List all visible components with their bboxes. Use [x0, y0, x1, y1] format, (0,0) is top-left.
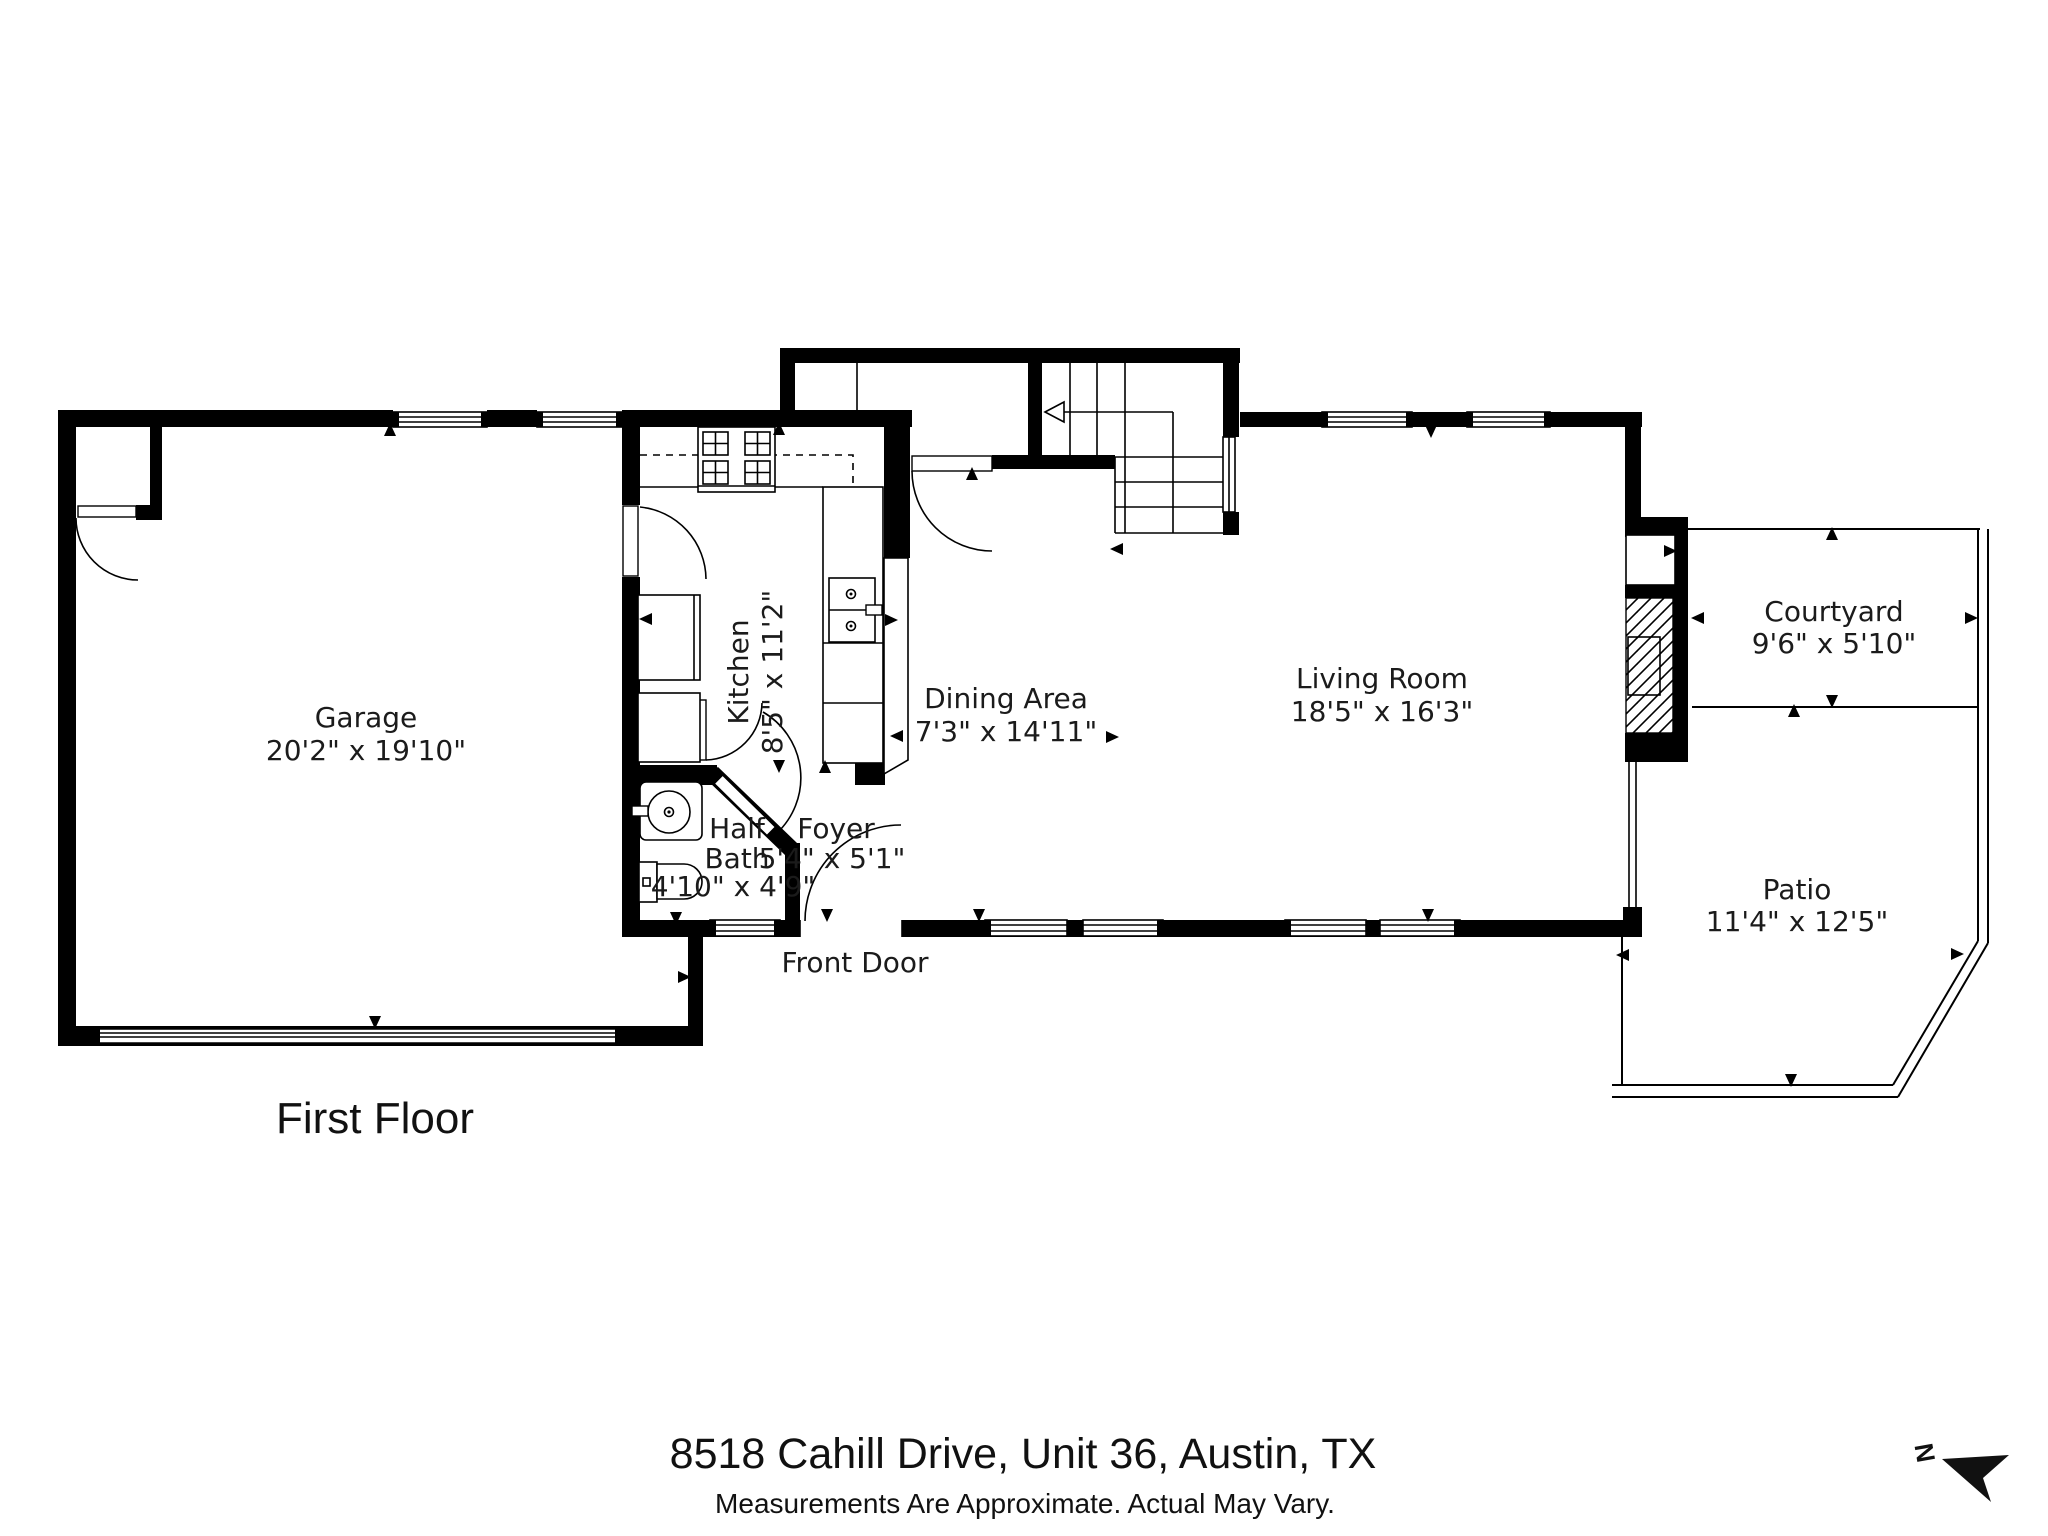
room-name: Dining Area: [924, 682, 1088, 715]
window-double: [985, 920, 1163, 936]
room-dims: 20'2" x 19'10": [266, 734, 466, 767]
floor-plan: Garage20'2" x 19'10" Kitchen8'5" x 11'2"…: [0, 0, 2048, 1536]
window: [710, 920, 780, 936]
room-dims: 11'4" x 12'5": [1706, 905, 1888, 938]
room-courtyard: Courtyard9'6" x 5'10": [1752, 595, 1917, 660]
stair-side-window: [1223, 437, 1235, 512]
disclaimer-line: Measurements Are Approximate. Actual May…: [715, 1488, 1335, 1519]
room-name: Courtyard: [1764, 595, 1903, 628]
courtyard-niche: [1626, 535, 1675, 585]
canvas-background: [0, 0, 2048, 1536]
bathroom-sink-icon: [632, 782, 702, 840]
window: [393, 412, 487, 427]
room-dims: 7'3" x 14'11": [915, 715, 1097, 748]
room-name: Kitchen: [722, 619, 755, 724]
room-dims: 5'4" x 5'1": [759, 842, 906, 875]
room-name: Patio: [1763, 873, 1832, 906]
window: [1322, 412, 1412, 427]
garage-door: [100, 1029, 615, 1043]
room-name: Living Room: [1296, 662, 1468, 695]
kitchen-sink-icon: [829, 578, 882, 642]
room-name-line1: Half: [709, 812, 766, 845]
fireplace-icon: [1626, 598, 1673, 733]
stove-icon: [698, 427, 775, 492]
window-double: [1285, 920, 1460, 936]
address-line: 8518 Cahill Drive, Unit 36, Austin, TX: [670, 1430, 1377, 1478]
room-dims: 18'5" x 16'3": [1291, 695, 1473, 728]
window: [537, 412, 622, 427]
floor-title: First Floor: [276, 1094, 474, 1143]
room-dining: Dining Area7'3" x 14'11": [915, 682, 1097, 748]
front-door-label: Front Door: [781, 946, 929, 979]
room-name: Foyer: [797, 812, 875, 845]
room-dims: 8'5" x 11'2": [756, 590, 789, 755]
counter-angled-end: [884, 558, 908, 774]
room-name: Garage: [315, 701, 418, 734]
window: [1467, 412, 1550, 427]
room-dims: 9'6" x 5'10": [1752, 627, 1917, 660]
room-living: Living Room18'5" x 16'3": [1291, 662, 1473, 728]
